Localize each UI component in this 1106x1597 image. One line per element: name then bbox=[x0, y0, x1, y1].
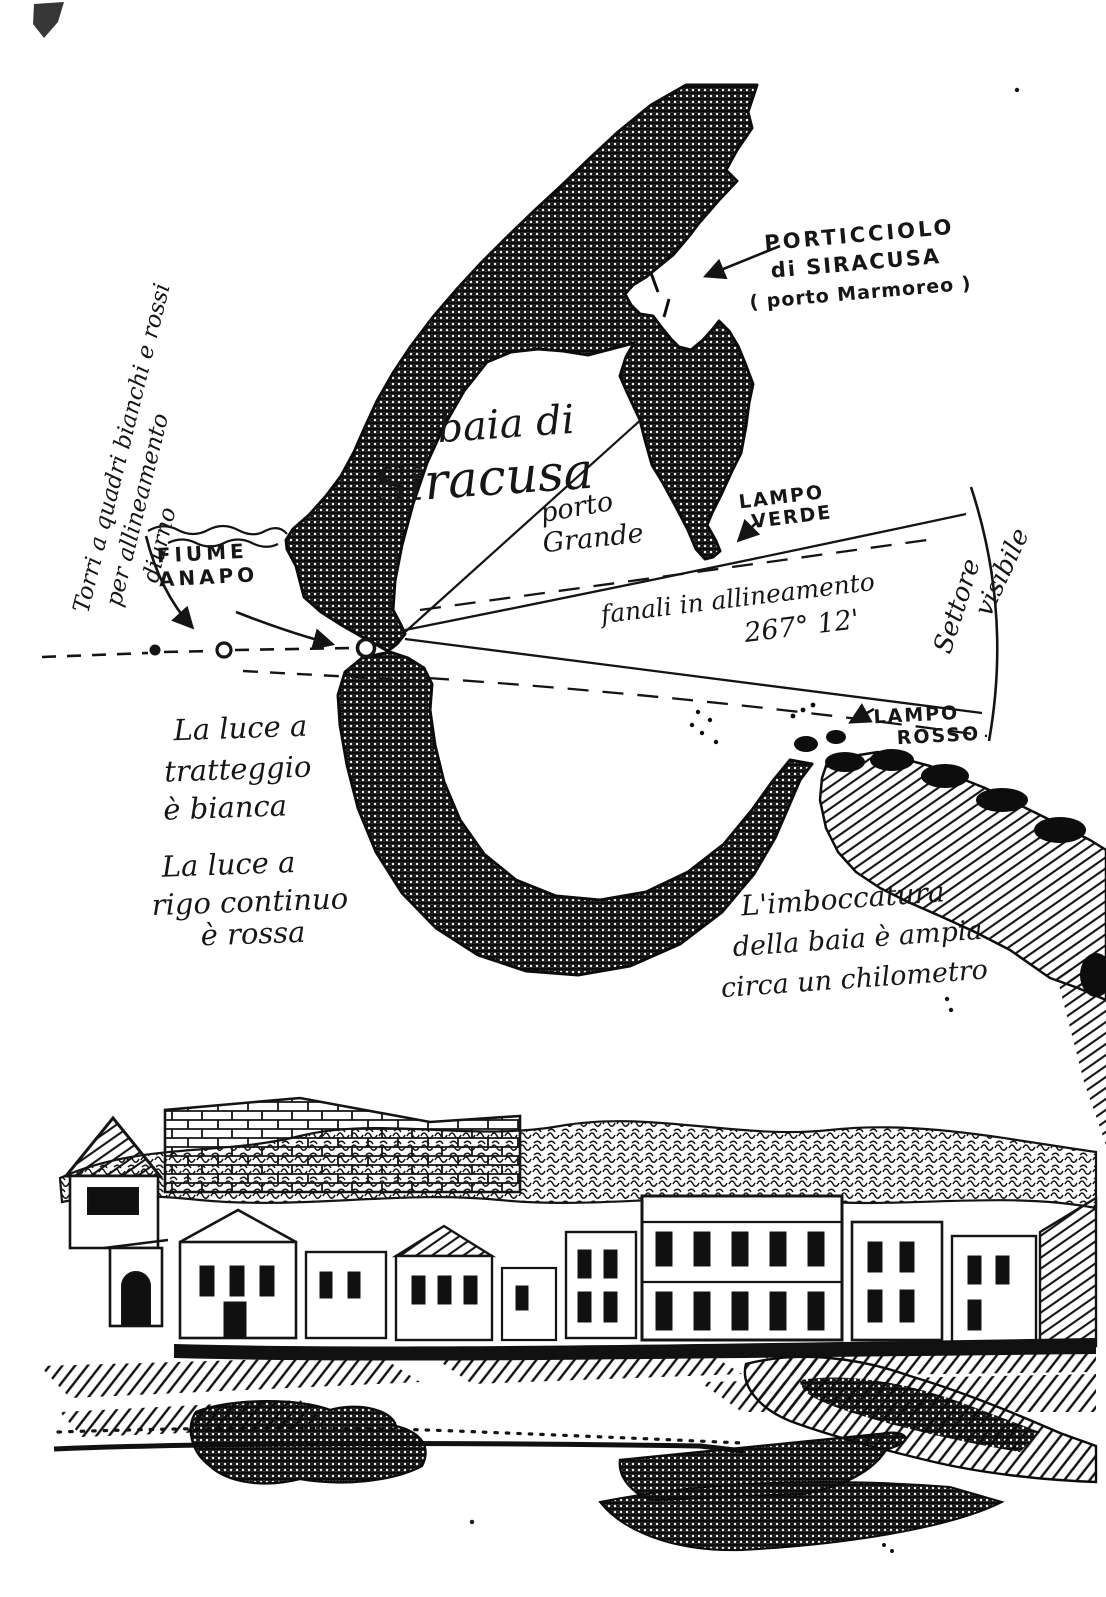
daymark-arrow-2 bbox=[236, 612, 332, 644]
church-window bbox=[88, 1188, 138, 1214]
label-imboccatura-line2: della baia è ampia bbox=[732, 915, 984, 963]
label-lampo-verde: LAMPO VERDE bbox=[738, 481, 834, 535]
front-light-circle bbox=[358, 640, 375, 657]
house-roof-hatched bbox=[396, 1226, 492, 1256]
label-luce-continua: La luce a rigo continuo è rossa bbox=[150, 843, 350, 954]
church-sketch bbox=[66, 1118, 168, 1326]
rear-light-circle bbox=[217, 643, 231, 657]
label-luce-tratteggio-line2: tratteggio bbox=[164, 750, 312, 789]
houses-row bbox=[180, 1196, 1096, 1346]
alignment-dashed-baseline bbox=[42, 648, 354, 657]
church-door-arch bbox=[122, 1272, 150, 1326]
daymark-dot bbox=[150, 645, 161, 656]
label-porticciolo: PORTICCIOLO di SIRACUSA ( porto Marmoreo… bbox=[743, 214, 972, 314]
label-fanali-line2: 267° 12' bbox=[742, 604, 861, 649]
label-luce-tratteggio: La luce a tratteggio è bianca bbox=[160, 709, 313, 827]
scan-blemish bbox=[33, 2, 64, 38]
gable-hatched-right bbox=[1040, 1198, 1096, 1346]
label-imboccatura-line1: L'imboccatura bbox=[739, 875, 946, 922]
label-luce-continua-line3: è rossa bbox=[200, 915, 306, 953]
label-luce-tratteggio-line1: La luce a bbox=[172, 709, 308, 748]
label-luce-continua-line1: La luce a bbox=[160, 845, 296, 884]
label-lampo-rosso-line2: ROSSO bbox=[896, 723, 980, 749]
sector-lower-solid bbox=[405, 639, 982, 713]
south-crescent-landmass bbox=[338, 652, 812, 975]
brick-wall bbox=[165, 1098, 520, 1192]
bottom-dark-bank bbox=[600, 1482, 1002, 1550]
north-landmass bbox=[286, 85, 757, 651]
house-roof bbox=[180, 1210, 296, 1242]
foreground-rocks-left bbox=[191, 1401, 426, 1483]
panorama-sketch bbox=[40, 1098, 1096, 1550]
label-settore-visibile: Settore visibile bbox=[928, 524, 1036, 657]
syracuse-bay-sketch: PORTICCIOLO di SIRACUSA ( porto Marmoreo… bbox=[0, 0, 1106, 1597]
label-porto-grande: porto Grande bbox=[538, 486, 645, 559]
scanned-sketch-page: PORTICCIOLO di SIRACUSA ( porto Marmoreo… bbox=[0, 0, 1106, 1597]
lampo-rosso-islets bbox=[690, 703, 846, 752]
label-anapo: ANAPO bbox=[158, 562, 258, 591]
label-lampo-rosso: LAMPO ROSSO bbox=[873, 701, 981, 750]
label-imboccatura-line3: circa un chilometro bbox=[720, 954, 989, 1004]
porticciolo-piers bbox=[651, 273, 669, 317]
label-luce-tratteggio-line3: è bianca bbox=[163, 788, 288, 826]
